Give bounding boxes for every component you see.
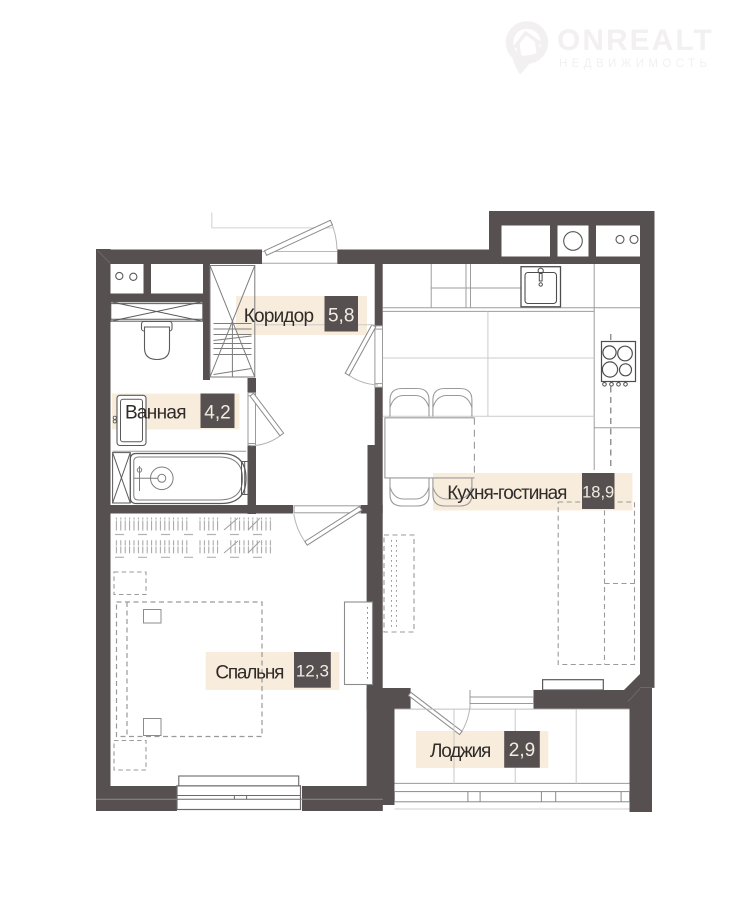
svg-text:Коридор: Коридор [244, 306, 314, 327]
svg-text:Спальня: Спальня [215, 663, 283, 684]
svg-text:ONREALT: ONREALT [557, 24, 714, 57]
svg-text:5,8: 5,8 [328, 306, 354, 327]
svg-text:2,9: 2,9 [509, 740, 535, 761]
svg-text:12,3: 12,3 [296, 662, 329, 681]
svg-text:Лоджия: Лоджия [430, 741, 490, 762]
svg-text:НЕДВИЖИМОСТЬ: НЕДВИЖИМОСТЬ [559, 58, 711, 70]
svg-text:Ванная: Ванная [125, 403, 186, 424]
svg-text:18,9: 18,9 [582, 484, 614, 502]
svg-text:4,2: 4,2 [204, 403, 230, 424]
svg-text:Кухня-гостиная: Кухня-гостиная [447, 483, 566, 504]
